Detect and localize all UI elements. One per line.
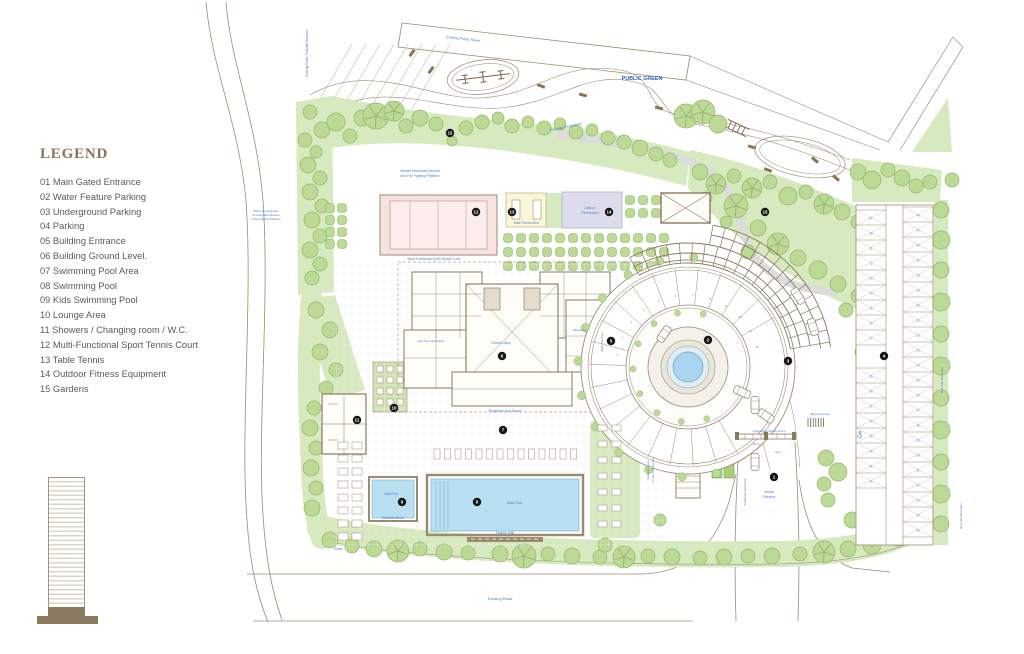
- stall-number: 58: [869, 232, 873, 236]
- tree: [304, 500, 320, 516]
- marker-15: 15: [446, 129, 454, 137]
- tree: [933, 326, 949, 342]
- stall-number: 40: [869, 450, 873, 454]
- hedge-tree: [569, 248, 578, 257]
- shrub: [678, 473, 686, 481]
- stall-number: 27: [916, 409, 920, 413]
- hedge-tree: [639, 209, 648, 218]
- site-plan-svg: 123456789101112 5758: [0, 0, 1024, 654]
- hedge-tree: [652, 196, 661, 205]
- site-plan-page: LEGEND 01 Main Gated Entrance02 Water Fe…: [0, 0, 1024, 654]
- lounge-furniture: [397, 388, 403, 394]
- tree: [601, 131, 615, 145]
- shrub: [578, 391, 586, 399]
- stall-number: 17: [869, 337, 873, 341]
- trellis-beam: [743, 262, 754, 279]
- trellis-beam: [730, 232, 737, 251]
- tree: [881, 163, 895, 177]
- marker-number: 11: [355, 418, 360, 423]
- car: [751, 397, 759, 414]
- outdoor-fitness-area: [562, 192, 622, 228]
- vehicle-entrance-label-1: Vehicle: [764, 490, 775, 494]
- stall-number: 51: [916, 469, 920, 473]
- sun-lounger: [598, 521, 607, 527]
- tree: [821, 493, 835, 507]
- tree: [313, 257, 327, 271]
- circle-stall-number: 11: [749, 329, 752, 333]
- hedge-tree: [608, 248, 617, 257]
- tree: [664, 549, 680, 565]
- sun-lounger: [352, 494, 362, 501]
- tree: [830, 276, 846, 292]
- new-plot-boundary-label-2: New Plot Boundary: [959, 503, 963, 529]
- sun-lounger: [571, 449, 577, 459]
- stall-number: 46: [916, 214, 920, 218]
- hedge-tree: [543, 234, 552, 243]
- hedge-tree: [639, 196, 648, 205]
- tree: [663, 153, 677, 167]
- tree: [298, 133, 312, 147]
- stall-number: 20: [916, 304, 920, 308]
- hedge-tree: [326, 216, 335, 225]
- tree: [310, 146, 322, 158]
- marker-9: 9: [398, 498, 406, 506]
- kids-pool-label: Kids Pool: [384, 492, 398, 496]
- bench: [408, 49, 415, 57]
- marker-3: 3: [784, 357, 792, 365]
- main-entrance-label: Main Entrance: [600, 332, 604, 352]
- shrub: [704, 416, 710, 422]
- circle-stall-number: 10: [738, 315, 742, 319]
- cabanas-label-2: for the 3 bedrooms: [651, 457, 655, 483]
- tree: [505, 119, 519, 133]
- shrub: [615, 448, 623, 456]
- hedge-tree: [595, 234, 604, 243]
- sun-lounger: [434, 449, 440, 459]
- hedge-tree: [504, 248, 513, 257]
- sun-lounger: [338, 442, 348, 449]
- marker-8: 8: [473, 498, 481, 506]
- tree: [933, 202, 949, 218]
- tree: [720, 216, 732, 228]
- cabanas-label-1: Cabanas Area: [646, 460, 650, 479]
- tree: [309, 481, 323, 495]
- projection-line-label: Projection Line Above: [489, 409, 522, 413]
- tree: [632, 140, 648, 156]
- tree: [541, 547, 555, 561]
- lounge-furniture: [387, 399, 393, 405]
- stair-core: [484, 288, 500, 310]
- tree: [343, 129, 357, 143]
- tree: [818, 450, 834, 466]
- sun-lounger: [487, 449, 493, 459]
- tree: [933, 516, 949, 532]
- stall-number: 13: [869, 277, 873, 281]
- playground-spinner: [445, 56, 521, 99]
- sun-lounger: [612, 473, 621, 479]
- sun-lounger: [352, 481, 362, 488]
- sun-lounger: [612, 521, 621, 527]
- tree: [945, 173, 959, 187]
- hedge-tree: [582, 234, 591, 243]
- car-body: [807, 318, 820, 337]
- court-label: Multi-Functional Sport Tennis Court: [408, 257, 461, 261]
- car-body: [751, 454, 759, 471]
- tree: [839, 303, 853, 317]
- shrub: [678, 419, 684, 425]
- tree: [399, 119, 413, 133]
- hedge-tree: [634, 234, 643, 243]
- stall-number: 43: [916, 259, 920, 263]
- sun-lounger: [598, 457, 607, 463]
- tree: [303, 460, 319, 476]
- sun-lounger: [539, 449, 545, 459]
- marker-number: 15: [763, 210, 768, 215]
- pedestrian-entrance-label: Pedestrian Entrance: [743, 478, 747, 506]
- tree: [692, 164, 708, 180]
- marker-12: 12: [472, 208, 480, 216]
- shrub: [712, 469, 720, 477]
- tree: [492, 112, 504, 124]
- marker-10: 10: [390, 404, 398, 412]
- table-tennis-label: Table Tennis Area: [513, 221, 538, 225]
- tree: [313, 229, 327, 243]
- tree: [492, 546, 508, 562]
- stall-number: 15: [869, 307, 873, 311]
- hedge-tree: [626, 209, 635, 218]
- stall-number: 41: [869, 465, 873, 469]
- sun-lounger: [598, 489, 607, 495]
- sun-lounger: [529, 449, 535, 459]
- sun-lounger: [338, 455, 348, 462]
- reception-label: Reception: [573, 328, 587, 332]
- marker-7: 7: [499, 426, 507, 434]
- sun-lounger: [466, 449, 472, 459]
- marker-6: 6: [498, 352, 506, 360]
- bench: [537, 83, 546, 89]
- tree: [863, 171, 881, 189]
- tree: [303, 105, 317, 119]
- tree: [933, 262, 949, 278]
- tree: [641, 549, 655, 563]
- bicycle-rack: [808, 418, 824, 427]
- tree: [461, 546, 475, 560]
- lounge-furniture: [397, 377, 403, 383]
- tree: [894, 170, 910, 186]
- tree: [300, 157, 316, 173]
- hedge-tree: [338, 228, 347, 237]
- hedge-tree: [530, 234, 539, 243]
- sun-lounger: [352, 468, 362, 475]
- tree: [412, 110, 428, 126]
- sun-lounger: [612, 457, 621, 463]
- lounge-furniture: [387, 377, 393, 383]
- hedge-tree: [326, 240, 335, 249]
- hedge-tree: [621, 248, 630, 257]
- lounge-furniture: [377, 399, 383, 405]
- sun-lounger: [508, 449, 514, 459]
- marker-14: 14: [605, 208, 613, 216]
- bicycles-area-label: Bicycles Area: [811, 412, 830, 416]
- sun-lounger: [612, 425, 621, 431]
- sun-lounger: [518, 449, 524, 459]
- tree: [305, 271, 319, 285]
- sun-lounger: [338, 520, 348, 527]
- marker-15: 15: [761, 208, 769, 216]
- shrub: [574, 357, 582, 365]
- tree: [817, 477, 831, 491]
- tree: [302, 420, 318, 436]
- stall-number: 26: [916, 394, 920, 398]
- tree: [302, 184, 318, 200]
- tree: [522, 116, 534, 128]
- sun-lounger: [352, 455, 362, 462]
- car-body: [751, 397, 759, 414]
- stall-number: 14: [869, 292, 873, 296]
- circle-stall-number: 12: [756, 345, 760, 349]
- stall-number: 18: [916, 274, 920, 278]
- sun-lounger: [338, 533, 348, 540]
- stall-number: 23: [916, 349, 920, 353]
- tree: [429, 117, 443, 131]
- sun-lounger: [352, 442, 362, 449]
- trellis-beam: [788, 333, 807, 339]
- lounge-furniture: [397, 399, 403, 405]
- shrub: [654, 410, 660, 416]
- tree: [909, 179, 923, 193]
- hedge-tree: [530, 248, 539, 257]
- marker-1: 1: [770, 473, 778, 481]
- stall-number: 42: [869, 480, 873, 484]
- main-pool-label: Main Pool: [507, 501, 522, 505]
- sun-lounger: [338, 468, 348, 475]
- back-door-label-3: & Fire Fighting Platform: [251, 217, 281, 221]
- sun-lounger: [598, 505, 607, 511]
- hedge-tree: [556, 248, 565, 257]
- marker-11: 11: [353, 416, 361, 424]
- fitness-label-2: Fitness Area: [581, 211, 599, 215]
- marker-5: 5: [607, 337, 615, 345]
- bench: [748, 145, 757, 150]
- tree: [649, 147, 663, 161]
- hedge-tree: [517, 234, 526, 243]
- marker-13: 13: [508, 208, 516, 216]
- stall-number: 19: [916, 289, 920, 293]
- feature-wall: [467, 537, 543, 542]
- shrub: [637, 391, 643, 397]
- trellis-beam: [724, 250, 731, 269]
- tree: [799, 185, 813, 199]
- trellis-beam: [752, 269, 764, 285]
- bench: [579, 93, 588, 98]
- stall-number: 38: [869, 420, 873, 424]
- marker-number: 14: [607, 210, 612, 215]
- tree: [302, 242, 318, 258]
- tree: [716, 549, 732, 565]
- tree: [764, 548, 780, 564]
- tree: [790, 250, 806, 266]
- shrub: [598, 294, 606, 302]
- trellis-beam: [734, 256, 743, 274]
- sun-lounger: [476, 449, 482, 459]
- tree: [840, 541, 856, 557]
- footpath-entrance-label: Existing Public Footpath Entrance: [305, 29, 309, 77]
- stall-number: 29: [916, 439, 920, 443]
- tree: [307, 401, 321, 415]
- sun-lounger: [550, 449, 556, 459]
- hedge-tree: [626, 196, 635, 205]
- rescue-label-1: Vehicle Articulated Rescue: [400, 169, 440, 173]
- tree: [586, 124, 598, 136]
- hedge-tree: [621, 234, 630, 243]
- climbing-frame: [724, 119, 749, 136]
- tree: [304, 212, 320, 228]
- marker-number: 12: [474, 210, 479, 215]
- tree: [923, 175, 937, 189]
- operable-doors-label: Operable Entrance Doors: [753, 429, 786, 433]
- shrub: [635, 341, 641, 347]
- stall-number: 36: [869, 390, 873, 394]
- lounge-furniture: [387, 388, 393, 394]
- tree: [750, 220, 766, 236]
- shrub: [700, 311, 706, 317]
- hedge-tree: [326, 228, 335, 237]
- car: [751, 454, 759, 471]
- tree: [313, 171, 327, 185]
- hedge-tree: [556, 234, 565, 243]
- hedge-tree: [569, 234, 578, 243]
- ne-green-wedge: [912, 98, 952, 152]
- tree: [309, 441, 323, 455]
- lounge-furniture: [387, 366, 393, 372]
- sun-lounger: [598, 425, 607, 431]
- feature-wall-label: Feature Wall: [496, 531, 514, 535]
- stall-number: 53: [916, 499, 920, 503]
- stall-number: 35: [869, 375, 873, 379]
- lounge-furniture: [397, 366, 403, 372]
- shrub: [675, 310, 681, 316]
- lounge-furniture: [377, 388, 383, 394]
- main-pool: [431, 479, 579, 531]
- grand-lobby-label: Grand Lobby: [491, 341, 511, 345]
- hedge-tree: [517, 248, 526, 257]
- stall-number: 44: [916, 244, 920, 248]
- stall-number: 21: [916, 319, 920, 323]
- public-green-label: PUBLIC GREEN: [622, 76, 663, 82]
- tree: [932, 231, 950, 249]
- sun-lounger: [445, 449, 451, 459]
- sun-lounger: [560, 449, 566, 459]
- tree: [447, 136, 457, 146]
- stall-number: 24: [916, 364, 920, 368]
- hedge-tree: [338, 240, 347, 249]
- marker-4: 4: [880, 352, 888, 360]
- sun-lounger: [338, 494, 348, 501]
- spa-reception-label: Spa Area Reception: [418, 339, 445, 343]
- tree: [809, 261, 827, 279]
- stair-core: [524, 288, 540, 310]
- lounge-furniture: [377, 377, 383, 383]
- stall-number: 22: [916, 334, 920, 338]
- tree: [564, 548, 580, 564]
- stall-number: 11: [870, 247, 873, 251]
- sun-lounger: [612, 505, 621, 511]
- stall-number: 12: [869, 262, 873, 266]
- tree: [933, 454, 949, 470]
- stall-number: 30: [916, 454, 920, 458]
- hedge-tree: [504, 234, 513, 243]
- tree: [693, 551, 707, 565]
- hedge-tree: [652, 209, 661, 218]
- trellis-beam: [800, 306, 818, 314]
- sun-lounger: [352, 520, 362, 527]
- sun-lounger: [598, 473, 607, 479]
- tree: [312, 344, 328, 360]
- new-plot-boundary-label-1: New Plot Boundary: [940, 367, 944, 393]
- marker-number: 13: [510, 210, 515, 215]
- tree: [932, 421, 950, 439]
- car: [807, 318, 820, 337]
- tree: [834, 204, 850, 220]
- sport-facilities: [380, 192, 710, 255]
- tree: [709, 115, 727, 133]
- sun-lounger: [352, 507, 362, 514]
- tree: [741, 549, 755, 563]
- shrub: [624, 271, 632, 279]
- existing-road-label: Existing Road: [488, 596, 513, 601]
- marker-number: 10: [392, 406, 397, 411]
- tree: [793, 547, 807, 561]
- stall-number: 25: [916, 379, 920, 383]
- sun-lounger: [612, 489, 621, 495]
- kids-pool: [372, 480, 414, 518]
- shrub: [630, 366, 636, 372]
- tree: [459, 121, 473, 135]
- hedge-tree: [543, 248, 552, 257]
- trellis-beam: [768, 287, 783, 300]
- hedge-tree: [595, 248, 604, 257]
- tree: [319, 381, 333, 395]
- stall-number: 52: [916, 484, 920, 488]
- sun-lounger: [598, 441, 607, 447]
- rescue-label-2: and Fire Fighting Platform: [400, 174, 439, 178]
- hedge-tree: [608, 234, 617, 243]
- marker-2: 2: [704, 336, 712, 344]
- stall-number: 54: [916, 514, 920, 518]
- entry-label: Entry: [753, 442, 761, 446]
- tree: [829, 463, 847, 481]
- water-feature: [673, 352, 703, 382]
- sun-lounger: [352, 533, 362, 540]
- stall-number: 55: [916, 529, 920, 533]
- umbrella-above-label: Umbrella Above: [382, 516, 405, 520]
- tree: [779, 187, 797, 205]
- tree: [932, 293, 950, 311]
- hedge-tree: [582, 248, 591, 257]
- tree: [763, 175, 777, 189]
- tree: [932, 485, 950, 503]
- stall-number: 39: [869, 435, 873, 439]
- vehicle-entrance-label-2: Entrance: [763, 495, 776, 499]
- lounge-furniture: [377, 366, 383, 372]
- grass-label: Grass: [334, 547, 343, 551]
- stall-number: 37: [869, 405, 873, 409]
- sun-lounger: [338, 507, 348, 514]
- stall-number: 28: [916, 424, 920, 428]
- stall-number: 16: [869, 322, 873, 326]
- bench: [427, 66, 434, 74]
- tree: [327, 113, 345, 131]
